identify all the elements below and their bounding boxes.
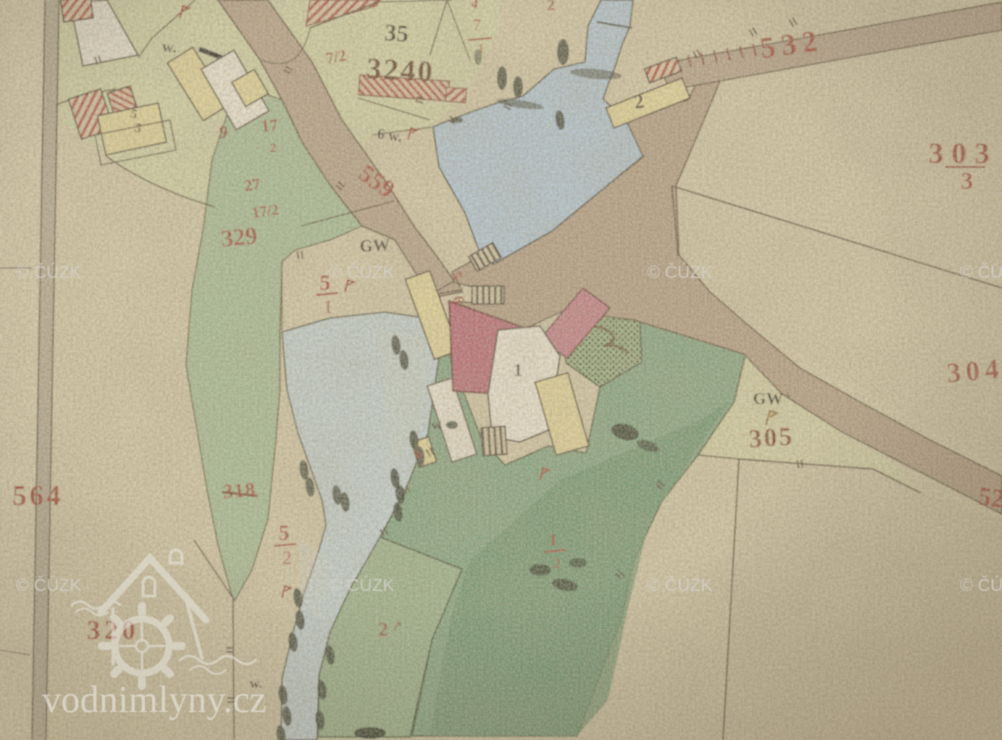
- svg-text:© ČÚZK: © ČÚZK: [16, 261, 82, 282]
- svg-text:© ČÚZK: © ČÚZK: [647, 574, 713, 595]
- svg-text:© ČÚZK: © ČÚZK: [329, 574, 395, 595]
- svg-text:© ČÚZK: © ČÚZK: [647, 261, 713, 282]
- svg-text:© ČÚZK: © ČÚZK: [960, 261, 1002, 282]
- svg-text:© ČÚZK: © ČÚZK: [16, 574, 82, 595]
- svg-text:© ČÚZK: © ČÚZK: [329, 261, 395, 282]
- svg-text:vodnimlyny.cz: vodnimlyny.cz: [42, 679, 266, 721]
- svg-text:© ČÚZK: © ČÚZK: [960, 574, 1002, 595]
